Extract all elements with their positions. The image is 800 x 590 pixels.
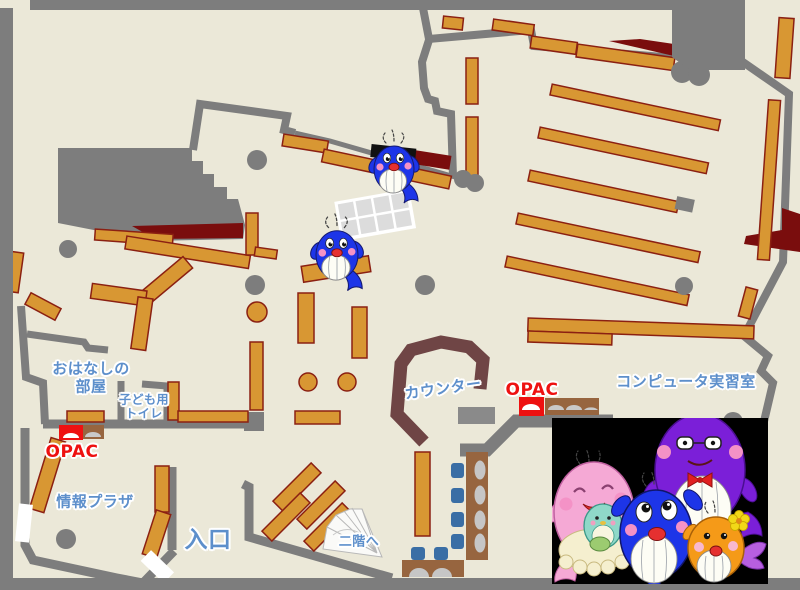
label-opac-center: OPAC xyxy=(506,380,559,400)
label-entrance: 入口 xyxy=(185,520,232,554)
label-storytelling-room-line2: 部屋 xyxy=(75,376,106,397)
mascot-photo xyxy=(545,398,768,590)
library-floor-map: おはなしの 部屋 子ども用 トイレ OPAC 情報プラザ 入口 二階へ カウンタ… xyxy=(0,0,800,590)
label-to-second-floor: 二階へ xyxy=(339,531,380,550)
label-opac-west: OPAC xyxy=(46,442,99,462)
counter-desk xyxy=(458,407,495,424)
label-computer-room: コンピュータ実習室 xyxy=(616,371,756,392)
opac-terminal-west xyxy=(59,425,104,440)
label-info-plaza: 情報プラザ xyxy=(56,491,134,512)
label-kids-toilet-line2: トイレ xyxy=(125,405,163,422)
